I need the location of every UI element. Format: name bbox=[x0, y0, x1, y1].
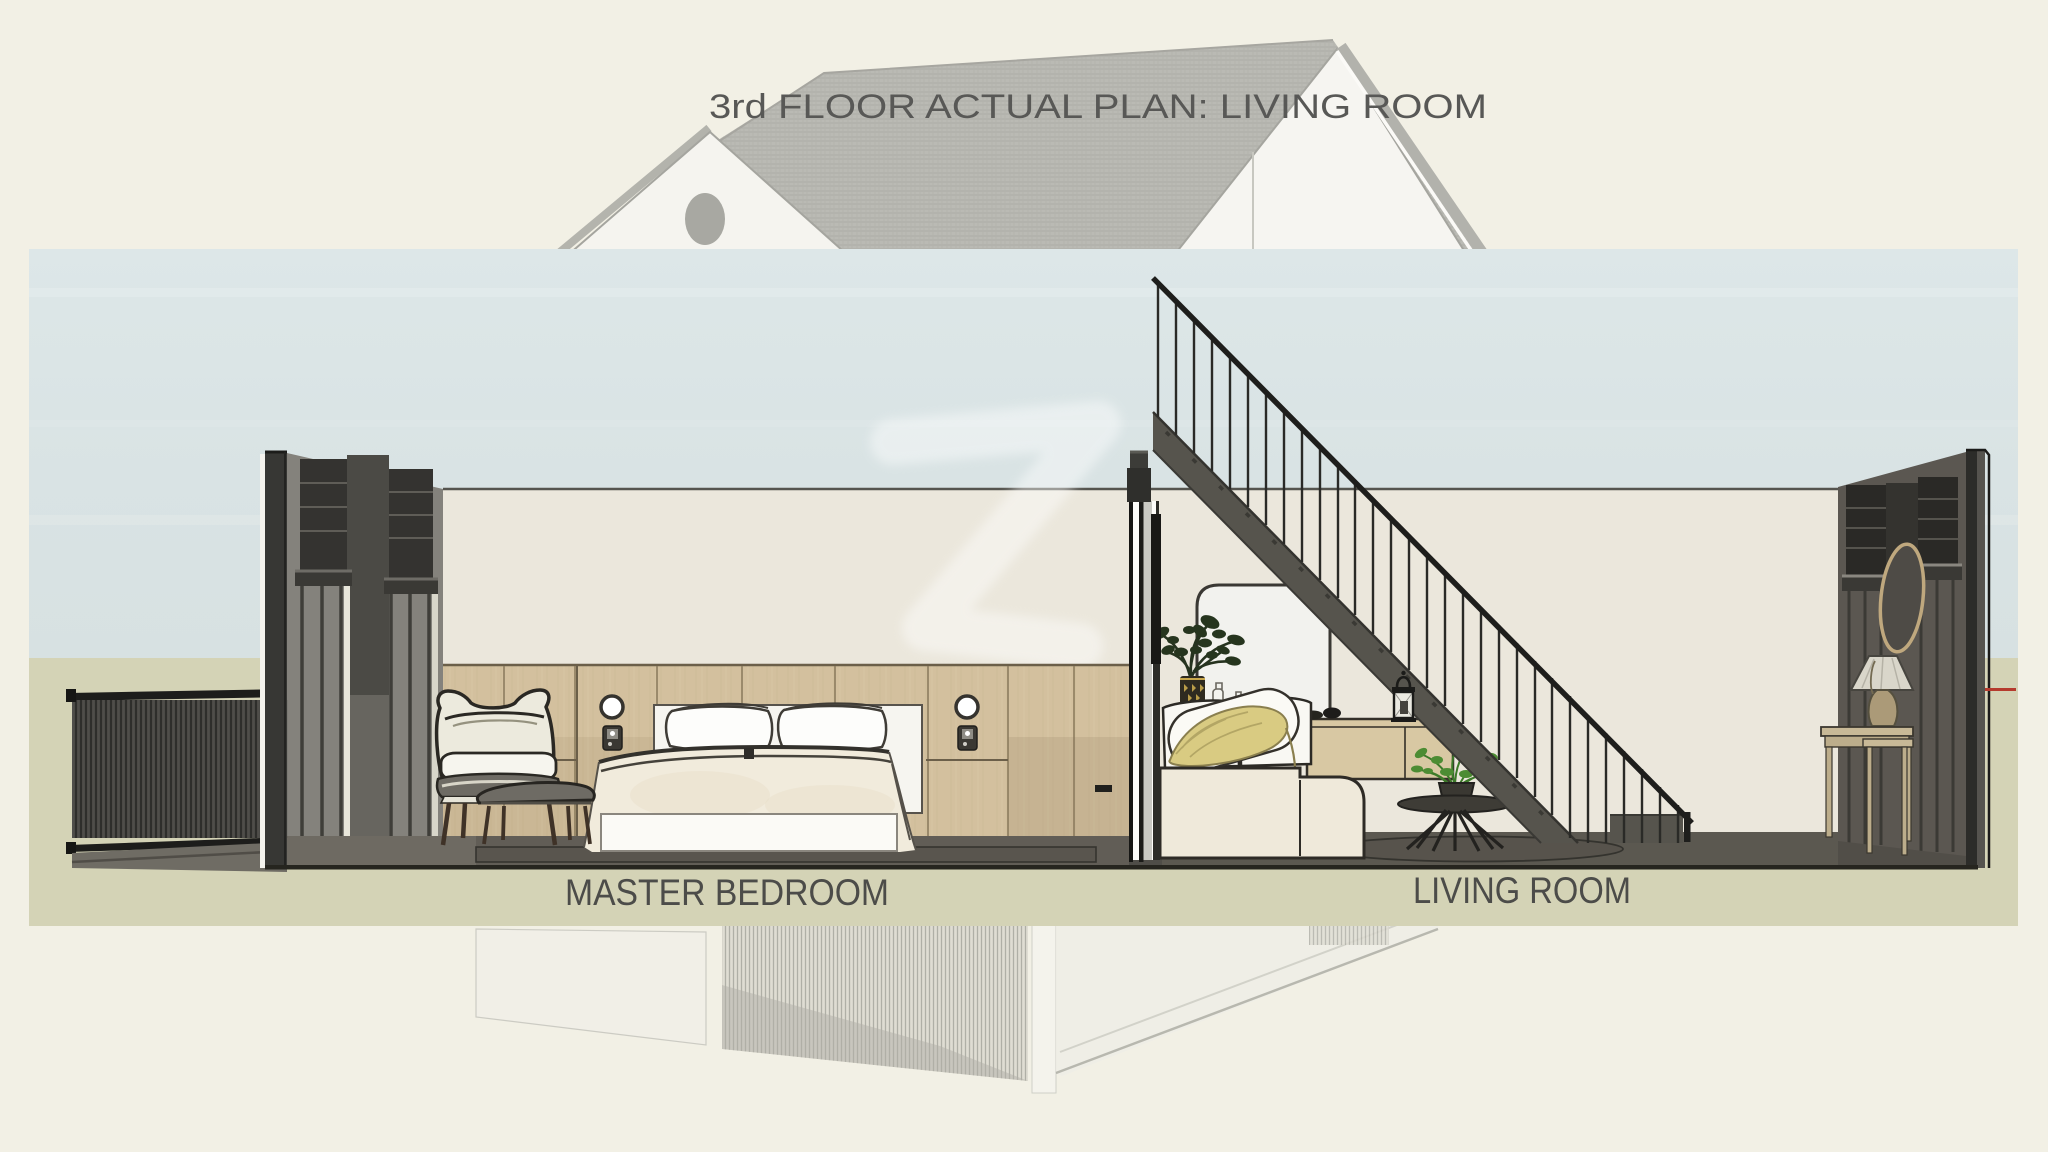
svg-text:MASTER BEDROOM: MASTER BEDROOM bbox=[565, 872, 889, 913]
svg-text:3rd FLOOR ACTUAL PLAN: LIVING: 3rd FLOOR ACTUAL PLAN: LIVING ROOM bbox=[709, 88, 1487, 126]
svg-text:LIVING ROOM: LIVING ROOM bbox=[1413, 870, 1631, 911]
